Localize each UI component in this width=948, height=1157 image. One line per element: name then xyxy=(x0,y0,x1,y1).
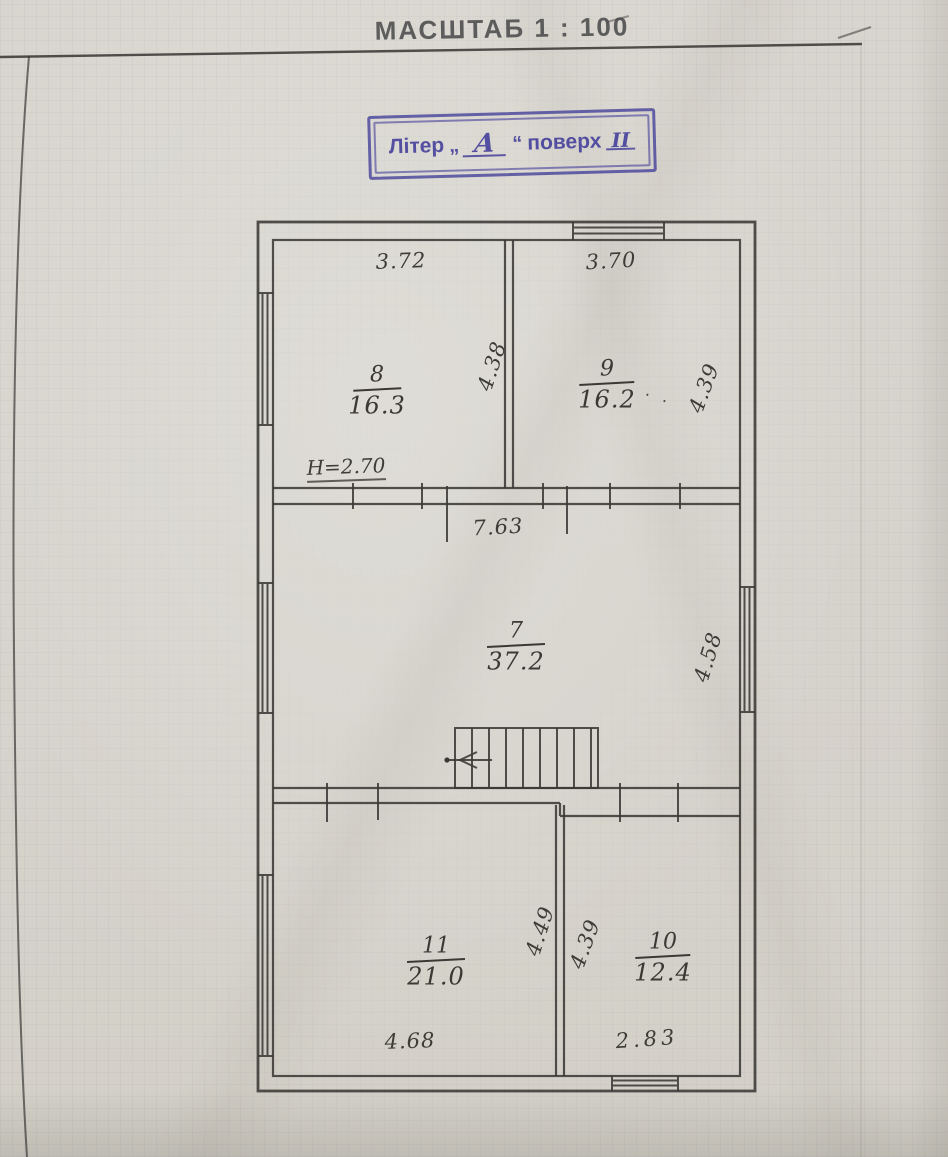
room-7-label: 7 37.2 xyxy=(487,621,545,674)
stamp-label-floor: поверх xyxy=(527,130,602,156)
dim-room10-width: 2.83 xyxy=(615,1025,679,1053)
stamp-quote-open: „ xyxy=(449,134,460,157)
stamp-liter-value: А xyxy=(463,132,509,157)
stamp-label-liter: Літер xyxy=(389,134,445,160)
room-number: 11 xyxy=(422,936,450,958)
room-area: 21.0 xyxy=(407,965,464,989)
room-area: 37.2 xyxy=(487,650,544,674)
stamp-frame: Літер „ А “ поверх ІІ xyxy=(373,114,650,174)
room-number: 7 xyxy=(509,621,523,643)
room-10-label: 10 12.4 xyxy=(634,932,691,985)
room-number: 10 xyxy=(649,932,677,954)
height-note: H=2.70 xyxy=(306,453,386,483)
room-11-label: 11 21.0 xyxy=(407,936,465,989)
stairs-direction-arrow-icon xyxy=(444,752,492,768)
stamp-floor-value: ІІ xyxy=(606,132,635,151)
stamp-quote-close: “ xyxy=(512,132,523,155)
dim-room9-width: 3.70 xyxy=(585,248,637,275)
room-area: 12.4 xyxy=(634,961,691,985)
room-area: 16.2 xyxy=(578,388,635,412)
dim-room8-width: 3.72 xyxy=(375,248,427,274)
room-number: 9 xyxy=(600,359,614,381)
stairs xyxy=(455,728,598,788)
room-8-label: 8 16.3 xyxy=(348,365,405,418)
stamp: Літер „ А “ поверх ІІ xyxy=(367,108,657,180)
room-number: 8 xyxy=(370,365,384,387)
dim-room7-width: 7.63 xyxy=(472,514,524,541)
dim-room11-width: 4.68 xyxy=(384,1028,436,1054)
room-9-label: 9 16.2 xyxy=(578,359,635,412)
room-area: 16.3 xyxy=(348,394,405,418)
scale-title: МАСШТАБ 1 : 100 xyxy=(374,11,629,46)
